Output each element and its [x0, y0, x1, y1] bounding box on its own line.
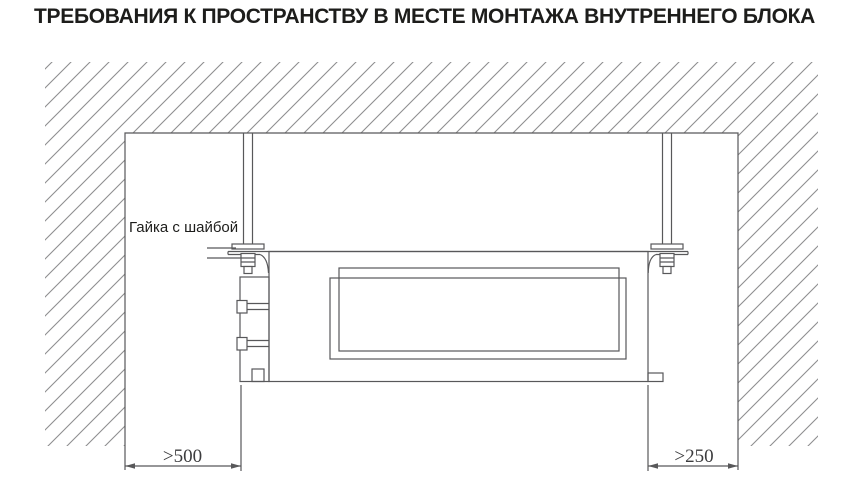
arrow-left-dim-start: [125, 463, 135, 469]
nut-left: [241, 254, 255, 267]
wall-hatch-region: [45, 62, 818, 446]
arrow-left-dim-end: [231, 463, 241, 469]
hanger-rod-left: [244, 133, 253, 244]
pipe-stub-lower: [247, 341, 269, 347]
right-clearance-dimension: >250: [649, 446, 739, 468]
nut-right: [660, 254, 674, 267]
inner-rect-upper: [339, 268, 619, 351]
bolt-tip-right: [663, 267, 671, 274]
installation-clearance-figure: ТРЕБОВАНИЯ К ПРОСТРАНСТВУ В МЕСТЕ МОНТАЖ…: [0, 0, 849, 500]
pipe-cap-lower: [237, 338, 247, 351]
nut-washer-callout: Гайка с шайбой: [129, 219, 238, 236]
inner-rect-lower: [330, 278, 626, 359]
room-outline: [125, 133, 738, 470]
unit-tab-right: [648, 373, 663, 382]
indoor-unit-body: [269, 252, 648, 382]
pipe-cap-upper: [237, 301, 247, 314]
pipe-stub-upper: [247, 304, 269, 310]
clearance-diagram: [0, 0, 849, 500]
left-clearance-dimension: >500: [140, 446, 225, 468]
washer-right: [651, 244, 683, 249]
washer-left: [232, 244, 264, 249]
unit-foot-left: [252, 369, 264, 382]
hanger-rod-right: [663, 133, 672, 244]
unit-side-panel: [240, 277, 269, 382]
bracket-curve-right: [648, 255, 656, 274]
bolt-tip-left: [244, 267, 252, 274]
bracket-curve-left: [260, 255, 269, 274]
